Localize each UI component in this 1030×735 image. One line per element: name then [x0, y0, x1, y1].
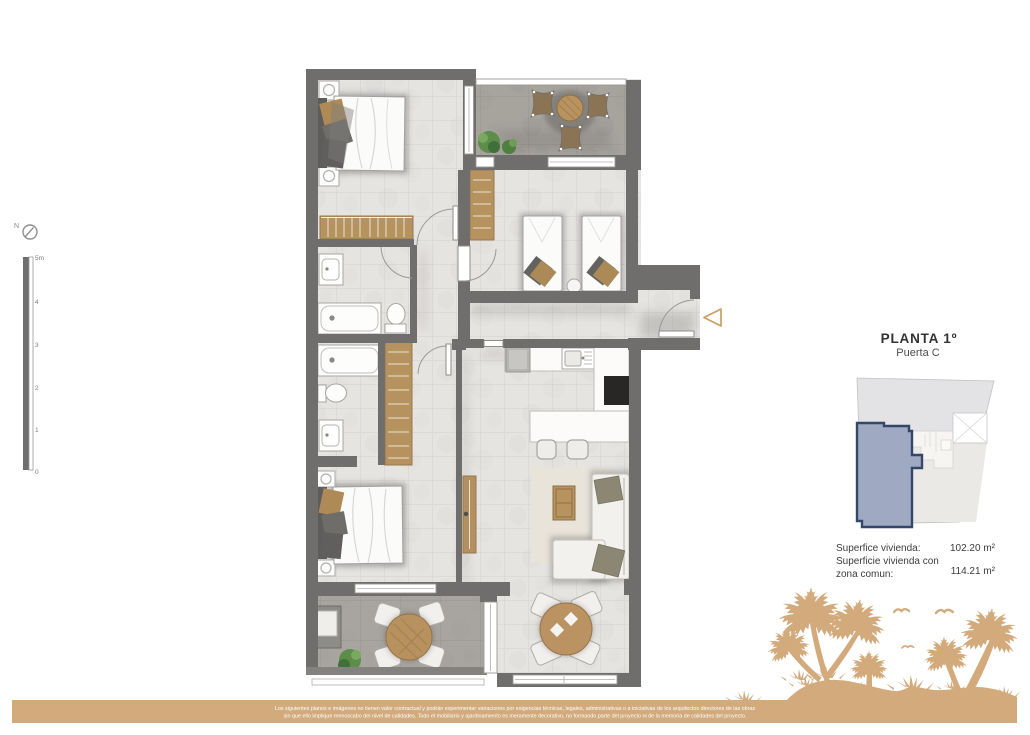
svg-text:1: 1 [35, 427, 39, 434]
svg-text:Puerta C: Puerta C [896, 347, 939, 359]
svg-text:0: 0 [35, 469, 39, 476]
svg-text:5m: 5m [35, 255, 44, 262]
svg-text:N: N [14, 223, 19, 230]
svg-text:2: 2 [35, 385, 39, 392]
svg-text:zona comun:: zona comun: [836, 569, 893, 580]
svg-text:114.21 m²: 114.21 m² [951, 566, 996, 577]
svg-text:3: 3 [35, 342, 39, 349]
svg-text:4: 4 [35, 299, 39, 306]
svg-text:Superfice vivienda:: Superfice vivienda: [836, 543, 921, 554]
svg-text:Superficie vivienda con: Superficie vivienda con [836, 556, 939, 567]
svg-text:PLANTA 1º: PLANTA 1º [881, 331, 958, 346]
svg-text:102.20 m²: 102.20 m² [950, 543, 996, 554]
svg-text:sin que ello implique menoscab: sin que ello implique menoscabo del nive… [284, 714, 747, 720]
svg-text:Los siguientes planos e imágen: Los siguientes planos e imágenes no tien… [275, 706, 756, 712]
